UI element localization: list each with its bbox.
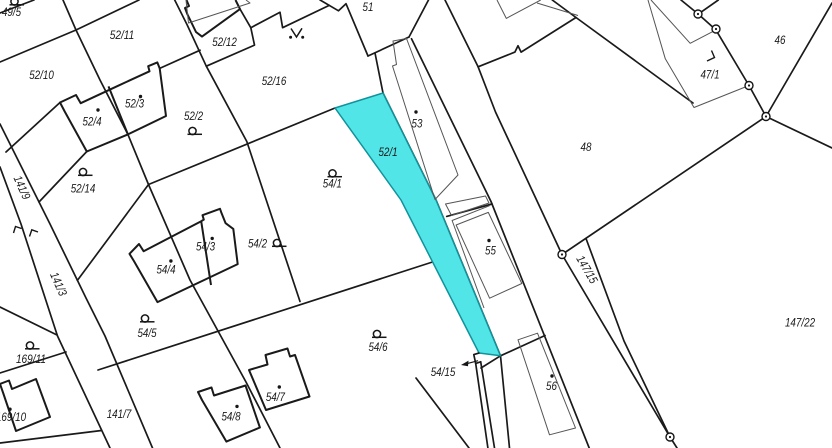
svg-text:169/11: 169/11 — [16, 352, 46, 366]
svg-text:52/1: 52/1 — [378, 145, 397, 159]
svg-text:52/11: 52/11 — [110, 28, 135, 42]
svg-text:54/5: 54/5 — [137, 326, 156, 340]
svg-text:54/4: 54/4 — [156, 263, 175, 277]
svg-text:46: 46 — [775, 33, 786, 47]
svg-text:48: 48 — [581, 140, 592, 154]
svg-text:54/6: 54/6 — [368, 340, 387, 354]
svg-text:54/15: 54/15 — [431, 365, 456, 379]
svg-text:52/3: 52/3 — [125, 97, 144, 111]
svg-text:147/22: 147/22 — [785, 316, 815, 330]
svg-text:52/10: 52/10 — [29, 68, 54, 82]
svg-text:54/2: 54/2 — [248, 237, 267, 251]
svg-text:54/7: 54/7 — [266, 390, 286, 404]
svg-text:47/1: 47/1 — [700, 68, 719, 82]
svg-text:56: 56 — [546, 379, 557, 393]
svg-text:54/8: 54/8 — [221, 410, 240, 424]
svg-text:54/1: 54/1 — [323, 177, 342, 191]
svg-text:52/16: 52/16 — [262, 74, 287, 88]
svg-text:53: 53 — [412, 117, 423, 131]
svg-text:51: 51 — [363, 0, 374, 14]
svg-text:54/3: 54/3 — [196, 240, 215, 254]
svg-text:52/4: 52/4 — [82, 115, 101, 129]
svg-text:52/12: 52/12 — [212, 35, 237, 49]
svg-text:49/5: 49/5 — [2, 5, 21, 19]
svg-text:169/10: 169/10 — [0, 410, 26, 424]
svg-text:141/7: 141/7 — [107, 407, 133, 421]
svg-text:52/14: 52/14 — [71, 182, 96, 196]
svg-text:52/2: 52/2 — [184, 109, 203, 123]
svg-text:55: 55 — [485, 244, 496, 258]
